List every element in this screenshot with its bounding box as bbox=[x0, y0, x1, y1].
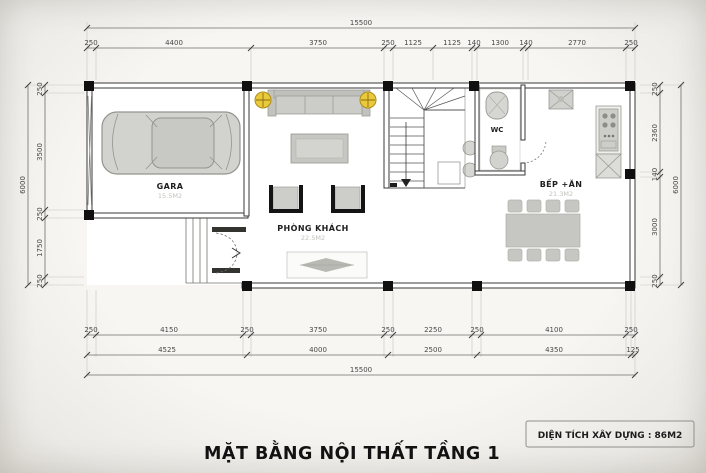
dim-label: 125 bbox=[626, 346, 639, 354]
dim-label: 250 bbox=[381, 39, 394, 47]
floor-plan-drawing: 15500 250 4400 3750 250 1125 1125 140 13… bbox=[0, 0, 706, 473]
room-label-gara: GARA bbox=[157, 182, 184, 191]
dim-label: 1125 bbox=[443, 39, 461, 47]
dim-label: 2250 bbox=[424, 326, 442, 334]
dim-label: 2770 bbox=[568, 39, 586, 47]
dim-label: 250 bbox=[624, 39, 637, 47]
dim-label: 4400 bbox=[165, 39, 183, 47]
dim-label: 4525 bbox=[158, 346, 176, 354]
dim-top-total: 15500 bbox=[350, 19, 372, 27]
coffee-table bbox=[291, 134, 348, 163]
dim-label: 4150 bbox=[160, 326, 178, 334]
room-label-phong-khach: PHÒNG KHÁCH bbox=[277, 222, 348, 233]
room-label-wc: WC bbox=[491, 126, 504, 134]
ceiling-light-icon bbox=[255, 92, 271, 108]
dim-label: 4100 bbox=[545, 326, 563, 334]
info-box: DIỆN TÍCH XÂY DỰNG : 86M2 bbox=[526, 421, 694, 447]
refrigerator bbox=[596, 154, 621, 178]
dim-label: 3000 bbox=[651, 218, 659, 236]
dim-label: 250 bbox=[651, 274, 659, 287]
ceiling-light-icon bbox=[360, 92, 376, 108]
dim-bottom-total: 15500 bbox=[350, 366, 372, 374]
garage-car bbox=[102, 112, 240, 174]
dim-label: 250 bbox=[36, 82, 44, 95]
sofa bbox=[268, 90, 370, 116]
dim-label: 140 bbox=[519, 39, 532, 47]
dim-label: 250 bbox=[84, 39, 97, 47]
room-area-bep-an: 21.3M2 bbox=[549, 190, 573, 198]
armchair bbox=[333, 185, 363, 211]
dim-label: 250 bbox=[381, 326, 394, 334]
dim-left-total: 6000 bbox=[19, 176, 27, 194]
dim-label: 4350 bbox=[545, 346, 563, 354]
tv-console bbox=[287, 252, 367, 278]
dim-label: 2500 bbox=[424, 346, 442, 354]
dim-label: 140 bbox=[467, 39, 480, 47]
dim-label: 3750 bbox=[309, 39, 327, 47]
dim-label: 250 bbox=[240, 326, 253, 334]
dim-label: 1125 bbox=[404, 39, 422, 47]
dim-label: 250 bbox=[36, 274, 44, 287]
armchair bbox=[271, 185, 301, 211]
dim-label: 250 bbox=[651, 82, 659, 95]
dim-label: 250 bbox=[84, 326, 97, 334]
built-area-label: DIỆN TÍCH XÂY DỰNG : 86M2 bbox=[538, 429, 683, 441]
dim-label: 250 bbox=[624, 326, 637, 334]
dim-label: 1750 bbox=[36, 239, 44, 257]
dim-label: 1300 bbox=[491, 39, 509, 47]
dim-label: 4000 bbox=[309, 346, 327, 354]
drawing-title: MẶT BẰNG NỘI THẤT TẦNG 1 bbox=[204, 440, 500, 464]
room-area-phong-khach: 22.5M2 bbox=[301, 234, 325, 242]
kitchen-sink bbox=[549, 90, 573, 109]
dim-label: 3500 bbox=[36, 143, 44, 161]
drawing-sheet: 15500 250 4400 3750 250 1125 1125 140 13… bbox=[0, 0, 706, 473]
dim-label: 250 bbox=[470, 326, 483, 334]
room-area-gara: 15.5M2 bbox=[158, 192, 182, 200]
dim-label: 3750 bbox=[309, 326, 327, 334]
dim-label: 140 bbox=[651, 168, 659, 181]
kitchen-counter-stove bbox=[596, 106, 621, 154]
dim-right-total: 6000 bbox=[672, 176, 680, 194]
dim-label: 2360 bbox=[651, 124, 659, 142]
dim-label: 250 bbox=[36, 207, 44, 220]
